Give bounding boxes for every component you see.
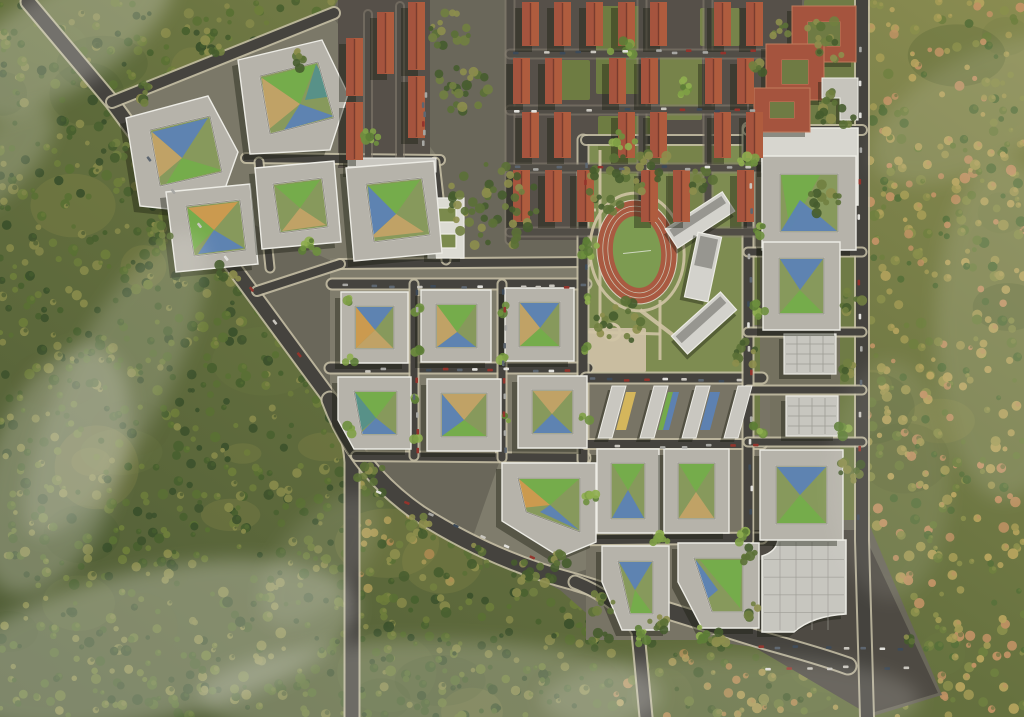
block-c3 [499, 288, 574, 367]
block-c6 [512, 376, 587, 454]
road-east-boundary [862, 0, 867, 717]
fog-patch [830, 360, 950, 600]
parking-garage-1 [779, 334, 836, 379]
block-nw-a [232, 40, 348, 160]
block-east-2 [757, 242, 840, 336]
scene-svg [0, 0, 1024, 717]
block-south-u2 [658, 449, 729, 539]
block-east-1 [756, 156, 856, 256]
parking-garage-2 [781, 396, 838, 441]
block-nw-d [249, 161, 341, 255]
block-c4 [332, 377, 411, 455]
block-south-u1 [591, 449, 659, 539]
block-c5 [421, 379, 501, 457]
masterplan-aerial-view [0, 0, 1024, 717]
block-c2 [415, 290, 491, 368]
block-east-3 [754, 450, 843, 546]
block-nw-e [340, 161, 442, 267]
